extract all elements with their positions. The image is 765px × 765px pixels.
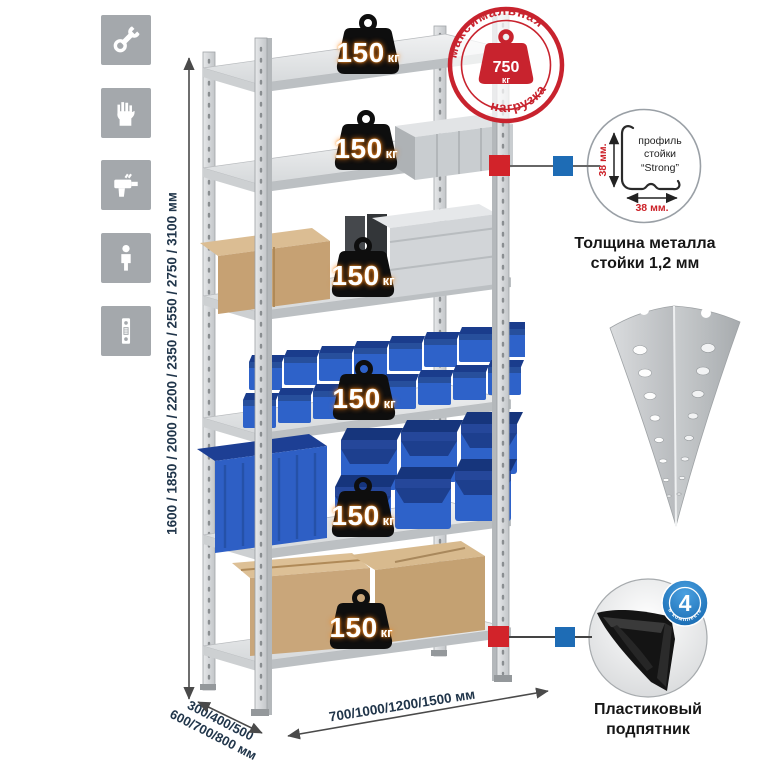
shelf-load-badge-1: 150кг [320,14,416,76]
wrench-icon [101,15,151,65]
plastic-foot-caption: Пластиковый подпятник [572,700,724,740]
stamp-unit: кг [502,75,511,85]
upright-post-image [600,298,750,533]
profile-caption: Толщина металла стойки 1,2 мм [560,234,730,274]
shelf-load-badge-3: 150кг [315,237,411,299]
height-dimension-label: 1600 / 1850 / 2000 / 2200 / 2350 / 2550 … [165,104,180,624]
profile-dim-vertical: 38 мм. [597,143,609,176]
max-load-stamp: максимальная нагрузка 750 кг [444,3,568,127]
product-infographic: 1600 / 1850 / 2000 / 2200 / 2350 / 2550 … [0,0,765,765]
gloves-icon [101,88,151,138]
svg-text:профиль: профиль [638,135,682,147]
drill-icon [101,160,151,210]
wrench-glyph [110,24,142,56]
upright-post-icon [101,306,151,356]
drill-glyph [110,169,142,201]
included-count-badge: 4 в комплекте [661,579,709,627]
svg-text:стойки: стойки [644,148,676,160]
person-glyph [110,242,142,274]
gloves-glyph [110,97,142,129]
stamp-value: 750 [493,59,520,76]
shelf-load-badge-4: 150кг [316,360,412,422]
shelf-load-badge-5: 150кг [315,477,411,539]
person-icon [101,233,151,283]
shelf-load-badge-2: 150кг [318,110,414,172]
shelf-load-badge-6: 150кг [313,589,409,651]
profile-callout-blue-marker [553,156,573,176]
profile-dim-horizontal: 38 мм. [635,202,668,214]
svg-text:“Strong”: “Strong” [641,162,679,174]
foot-callout-blue-marker [555,627,575,647]
profile-callout-circle: 38 мм. 38 мм. профиль стойки “Strong” [586,108,702,224]
upright-post-glyph [110,315,142,347]
included-count-value: 4 [679,590,692,616]
profile-label: профиль стойки “Strong” [638,135,682,174]
